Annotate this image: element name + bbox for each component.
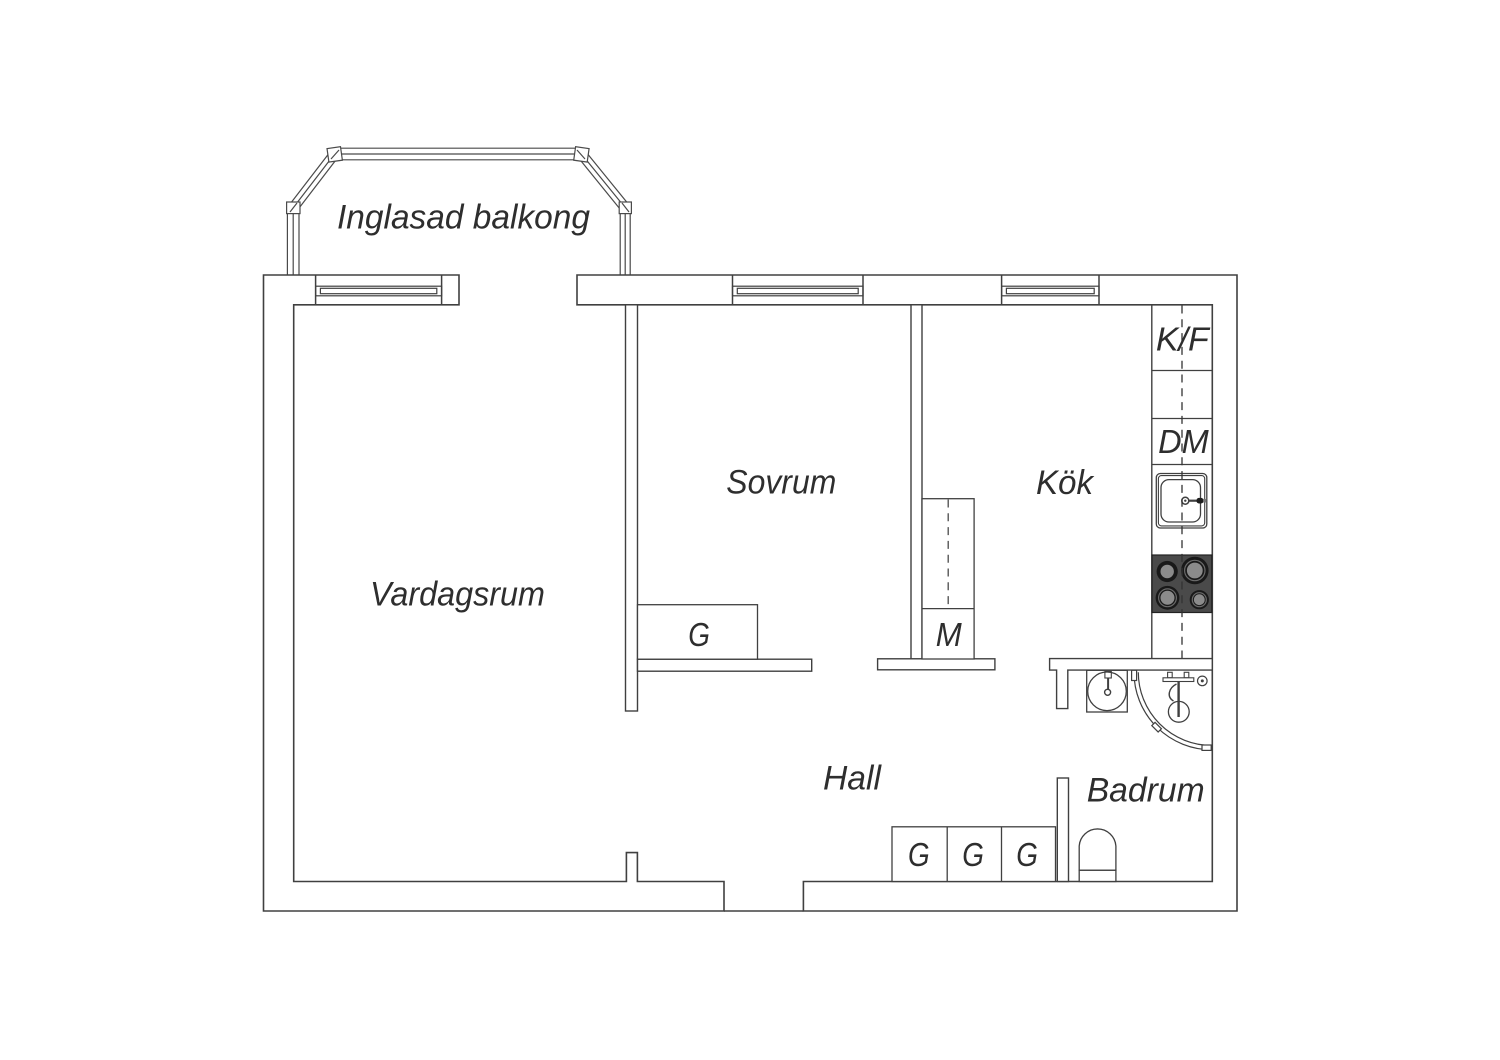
- svg-text:G: G: [908, 836, 930, 873]
- svg-text:Badrum: Badrum: [1087, 771, 1205, 809]
- svg-text:Inglasad balkong: Inglasad balkong: [337, 199, 590, 237]
- svg-text:Kök: Kök: [1036, 464, 1095, 502]
- svg-text:Vardagsrum: Vardagsrum: [370, 576, 545, 614]
- svg-text:G: G: [688, 616, 710, 653]
- svg-text:Sovrum: Sovrum: [726, 464, 836, 502]
- svg-text:DM: DM: [1158, 423, 1209, 460]
- svg-text:M: M: [936, 616, 962, 653]
- svg-text:K/F: K/F: [1156, 321, 1211, 358]
- svg-text:G: G: [1016, 836, 1038, 873]
- svg-text:G: G: [962, 836, 984, 873]
- svg-text:Hall: Hall: [823, 760, 882, 798]
